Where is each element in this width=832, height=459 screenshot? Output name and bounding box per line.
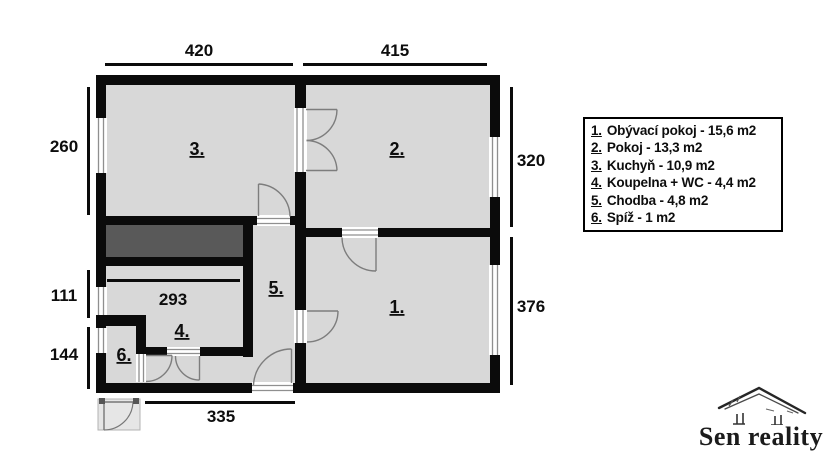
dim-left-top: 260: [50, 137, 78, 156]
window-bathroom-left: [95, 287, 107, 315]
legend-item: 2.Pokoj - 13,3 m2: [591, 139, 775, 156]
legend-item-label: Chodba - 4,8 m2: [607, 193, 708, 208]
room-label-bathroom: 4.: [174, 321, 189, 341]
dim-right-bottom: 376: [517, 297, 545, 316]
room-label-livingroom: 1.: [389, 297, 404, 317]
dim-bottom: 335: [207, 407, 235, 426]
window-livingroom-right: [489, 265, 501, 355]
legend-item: 1.Obývací pokoj - 15,6 m2: [591, 122, 775, 139]
dim-left-middle: 111: [51, 286, 78, 305]
legend-item-label: Kuchyň - 10,9 m2: [607, 158, 715, 173]
legend-item-label: Pokoj - 13,3 m2: [607, 140, 702, 155]
logo: Sen reality: [693, 381, 829, 452]
legend-item: 5.Chodba - 4,8 m2: [591, 192, 775, 209]
house-icon: [709, 381, 813, 425]
window-kitchen-left: [95, 118, 107, 173]
dim-top-right: 415: [381, 41, 409, 60]
dim-left-bottom: 144: [50, 345, 79, 364]
legend-item: 6.Spíž - 1 m2: [591, 209, 775, 226]
floorplan-page: 420 415 260 111 144 320 376 335 293 3. 2…: [0, 0, 832, 459]
legend-item: 3.Kuchyň - 10,9 m2: [591, 157, 775, 174]
legend-item-label: Koupelna + WC - 4,4 m2: [607, 175, 756, 190]
legend-item: 4.Koupelna + WC - 4,4 m2: [591, 174, 775, 191]
legend-item-label: Spíž - 1 m2: [607, 210, 675, 225]
room-label-pantry: 6.: [116, 345, 131, 365]
room-label-kitchen: 3.: [189, 139, 204, 159]
dim-top-left: 420: [185, 41, 213, 60]
legend-item-label: Obývací pokoj - 15,6 m2: [607, 123, 756, 138]
legend-item-number: 2.: [591, 140, 602, 155]
dark-area: [106, 225, 243, 257]
legend: 1.Obývací pokoj - 15,6 m2 2.Pokoj - 13,3…: [583, 117, 783, 232]
legend-item-number: 5.: [591, 193, 602, 208]
window-pantry-left: [95, 328, 107, 353]
room-label-room2: 2.: [389, 139, 404, 159]
window-room2-right: [489, 137, 501, 197]
logo-text: Sen reality: [693, 422, 829, 452]
legend-item-number: 1.: [591, 123, 602, 138]
legend-item-number: 4.: [591, 175, 602, 190]
room-label-hallway: 5.: [268, 278, 283, 298]
legend-item-number: 3.: [591, 158, 602, 173]
legend-item-number: 6.: [591, 210, 602, 225]
dim-right-top: 320: [517, 151, 545, 170]
door-swing-icon: [98, 398, 140, 430]
dim-bathroom: 293: [159, 290, 187, 309]
